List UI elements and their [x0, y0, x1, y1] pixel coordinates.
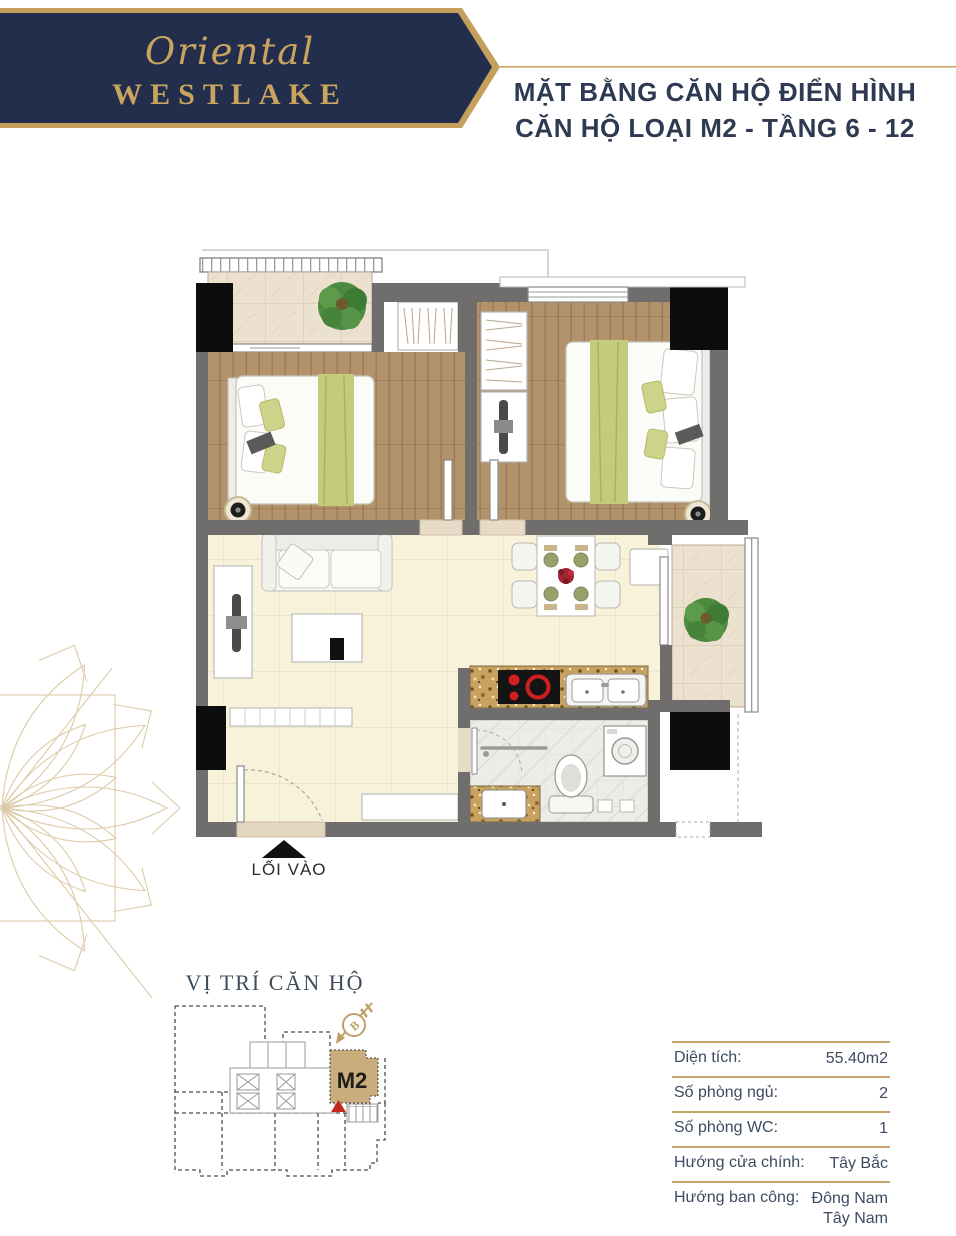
- bedroom-2-door: [490, 460, 498, 520]
- page-graphic: M2 B: [0, 0, 956, 1200]
- spec-row-door-direction: Hướng cửa chính: Tây Bắc: [672, 1146, 890, 1181]
- balcony-2: [660, 538, 758, 712]
- compass-icon: B: [336, 1003, 372, 1044]
- page-title: MẶT BẰNG CĂN HỘ ĐIỂN HÌNH CĂN HỘ LOẠI M2…: [480, 74, 950, 146]
- spec-value: 55.40m2: [826, 1049, 888, 1069]
- floor-drain: [620, 800, 634, 812]
- bathroom-door: [472, 728, 477, 774]
- key-plan: M2 B: [175, 1003, 385, 1176]
- washing-machine: [604, 726, 646, 776]
- spec-label: Số phòng ngủ:: [674, 1084, 778, 1102]
- spec-value: Đông Nam Tây Nam: [812, 1189, 888, 1229]
- spec-label: Hướng ban công:: [674, 1189, 799, 1207]
- keyplan-title: VỊ TRÍ CĂN HỘ: [150, 970, 400, 996]
- bedside-speaker-1: [225, 497, 251, 523]
- brand-name-caps: WESTLAKE: [40, 78, 420, 112]
- spec-row-wc: Số phòng WC: 1: [672, 1111, 890, 1146]
- bed-1: [228, 374, 374, 506]
- gold-rule: [492, 66, 956, 68]
- spec-row-area: Diện tích: 55.40m2: [672, 1041, 890, 1076]
- balcony-plant: [318, 282, 367, 330]
- floor-drain: [598, 800, 612, 812]
- page-title-line2: CĂN HỘ LOẠI M2 - TẦNG 6 - 12: [480, 110, 950, 146]
- spec-label: Hướng cửa chính:: [674, 1154, 805, 1172]
- entrance-arrow-icon: [262, 840, 306, 858]
- bed-2: [566, 340, 710, 506]
- brand-name-script: Oriental: [40, 30, 420, 73]
- unit-m2-label: M2: [337, 1068, 368, 1093]
- page-title-line1: MẶT BẰNG CĂN HỘ ĐIỂN HÌNH: [480, 74, 950, 110]
- tv-console: [214, 566, 252, 678]
- spec-row-bedrooms: Số phòng ngủ: 2: [672, 1076, 890, 1111]
- low-shelf: [230, 708, 352, 726]
- spec-label: Diện tích:: [674, 1049, 742, 1067]
- kitchen-counter: [470, 666, 648, 708]
- bathroom-vanity: [470, 786, 540, 822]
- shoe-cabinet: [362, 794, 458, 820]
- bathroom: [470, 720, 648, 822]
- stairs: [347, 1104, 378, 1122]
- coffee-table: [292, 614, 362, 662]
- bedroom-1-door: [444, 460, 452, 520]
- balcony-sliding-door: [660, 557, 668, 645]
- balcony-plant: [684, 598, 729, 642]
- spec-value: Tây Bắc: [829, 1154, 888, 1174]
- kitchen-sink: [566, 674, 646, 706]
- spec-value: 2: [879, 1084, 888, 1104]
- entrance-label: LỐI VÀO: [234, 860, 344, 880]
- spec-row-balcony-direction: Hướng ban công: Đông Nam Tây Nam: [672, 1181, 890, 1236]
- spec-table: Diện tích: 55.40m2 Số phòng ngủ: 2 Số ph…: [672, 1041, 890, 1236]
- floor-plan: [196, 250, 762, 858]
- sofa: [262, 534, 392, 591]
- spec-label: Số phòng WC:: [674, 1119, 778, 1137]
- lotus-decoration: [0, 618, 180, 998]
- spec-value: 1: [879, 1119, 888, 1139]
- entrance-threshold: [237, 822, 325, 837]
